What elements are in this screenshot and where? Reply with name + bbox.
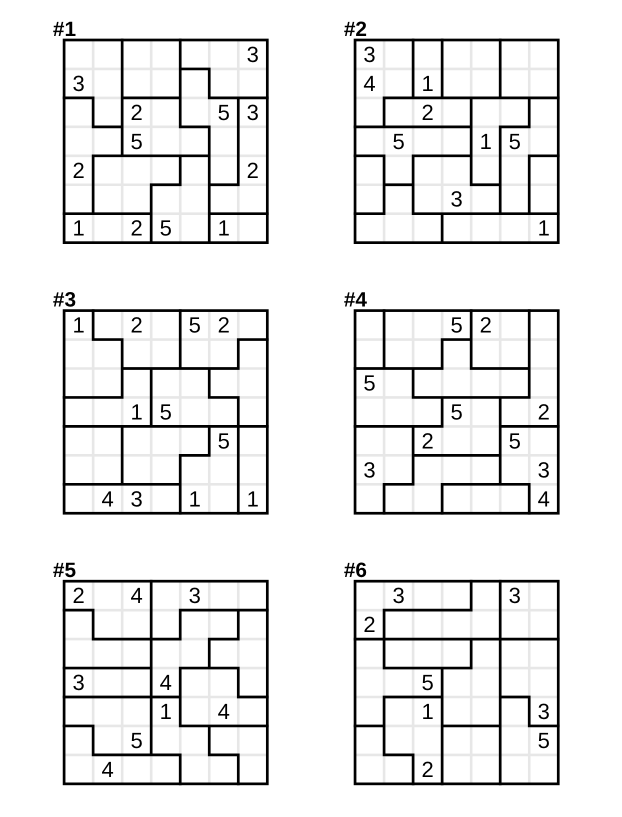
svg-text:5: 5	[160, 399, 172, 424]
svg-text:1: 1	[421, 699, 433, 724]
svg-text:5: 5	[131, 129, 143, 154]
svg-text:2: 2	[218, 313, 230, 338]
svg-text:3: 3	[189, 583, 201, 608]
svg-text:1: 1	[480, 129, 492, 154]
svg-text:1: 1	[218, 216, 230, 241]
svg-text:5: 5	[363, 370, 375, 395]
svg-text:5: 5	[538, 728, 550, 753]
svg-text:3: 3	[538, 457, 550, 482]
svg-text:1: 1	[421, 71, 433, 96]
svg-text:2: 2	[131, 216, 143, 241]
svg-text:#2: #2	[344, 18, 367, 41]
svg-text:4: 4	[363, 71, 375, 96]
svg-text:2: 2	[131, 313, 143, 338]
svg-text:5: 5	[189, 313, 201, 338]
svg-text:3: 3	[72, 670, 84, 695]
svg-text:3: 3	[247, 100, 259, 125]
svg-text:5: 5	[509, 428, 521, 453]
svg-text:3: 3	[247, 42, 259, 67]
svg-text:5: 5	[451, 399, 463, 424]
svg-text:3: 3	[72, 71, 84, 96]
svg-text:3: 3	[392, 583, 404, 608]
svg-text:2: 2	[421, 428, 433, 453]
svg-text:1: 1	[131, 399, 143, 424]
svg-text:5: 5	[218, 428, 230, 453]
svg-text:5: 5	[509, 129, 521, 154]
svg-text:5: 5	[451, 313, 463, 338]
svg-text:#5: #5	[53, 559, 76, 582]
svg-text:2: 2	[72, 583, 84, 608]
svg-text:4: 4	[538, 486, 550, 511]
svg-text:1: 1	[247, 486, 259, 511]
svg-text:1: 1	[72, 313, 84, 338]
svg-text:4: 4	[160, 670, 172, 695]
svg-text:3: 3	[509, 583, 521, 608]
svg-text:5: 5	[421, 670, 433, 695]
svg-text:1: 1	[189, 486, 201, 511]
svg-text:#1: #1	[53, 18, 76, 41]
svg-text:3: 3	[538, 699, 550, 724]
svg-text:2: 2	[247, 158, 259, 183]
svg-text:2: 2	[72, 158, 84, 183]
svg-text:1: 1	[538, 216, 550, 241]
svg-text:2: 2	[363, 612, 375, 637]
svg-text:2: 2	[421, 757, 433, 782]
svg-text:3: 3	[451, 187, 463, 212]
svg-text:3: 3	[363, 457, 375, 482]
svg-text:#4: #4	[344, 288, 368, 311]
svg-text:5: 5	[392, 129, 404, 154]
svg-text:2: 2	[480, 313, 492, 338]
svg-text:5: 5	[218, 100, 230, 125]
svg-text:2: 2	[421, 100, 433, 125]
svg-text:5: 5	[131, 728, 143, 753]
svg-text:4: 4	[131, 583, 143, 608]
svg-text:4: 4	[102, 486, 114, 511]
svg-text:4: 4	[102, 757, 114, 782]
svg-text:3: 3	[363, 42, 375, 67]
svg-text:2: 2	[538, 399, 550, 424]
svg-text:1: 1	[72, 216, 84, 241]
svg-text:#3: #3	[53, 288, 76, 311]
svg-text:1: 1	[160, 699, 172, 724]
svg-text:#6: #6	[344, 559, 367, 582]
svg-text:4: 4	[218, 699, 230, 724]
svg-text:5: 5	[160, 216, 172, 241]
svg-text:2: 2	[131, 100, 143, 125]
svg-text:3: 3	[131, 486, 143, 511]
